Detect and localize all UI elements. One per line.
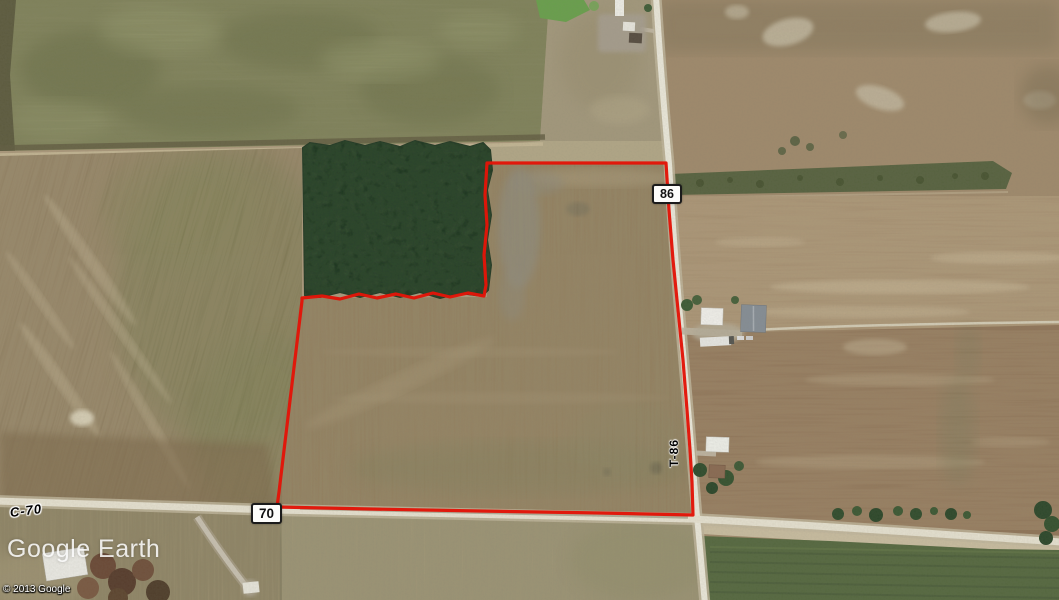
route-badge-86: 86 — [652, 184, 682, 204]
imagery-noise — [0, 0, 1059, 600]
map-viewport[interactable]: 86 70 T-86 C-70 Google Earth © 2013 Goog… — [0, 0, 1059, 600]
satellite-imagery — [0, 0, 1059, 600]
road-label-t86: T-86 — [667, 430, 681, 476]
google-earth-watermark: Google Earth — [7, 535, 160, 564]
route-badge-70: 70 — [251, 503, 282, 524]
copyright-attribution: © 2013 Google — [3, 584, 70, 595]
